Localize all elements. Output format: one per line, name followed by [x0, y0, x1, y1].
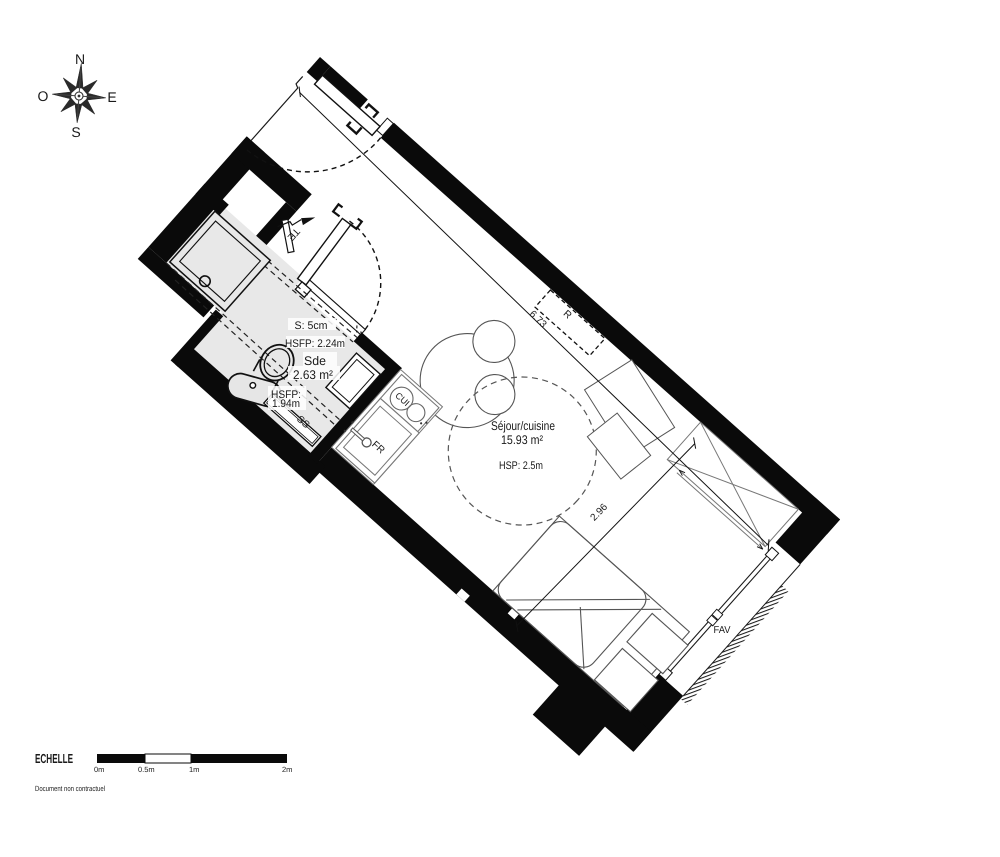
svg-text:0m: 0m	[94, 765, 104, 774]
svg-text:O: O	[38, 88, 49, 104]
svg-text:S: S	[71, 124, 80, 140]
svg-text:2.63 m²: 2.63 m²	[293, 368, 333, 382]
svg-text:2m: 2m	[282, 765, 292, 774]
svg-text:Sde: Sde	[304, 354, 326, 368]
svg-text:HSP: 2.5m: HSP: 2.5m	[499, 460, 543, 472]
svg-text:E: E	[107, 89, 116, 105]
svg-text:FAV: FAV	[714, 625, 731, 636]
svg-text:Document non contractuel: Document non contractuel	[35, 784, 105, 793]
svg-text:1m: 1m	[189, 765, 199, 774]
svg-text:15.93 m²: 15.93 m²	[501, 433, 543, 447]
svg-text:1.94m: 1.94m	[272, 398, 300, 410]
svg-text:0.5m: 0.5m	[138, 765, 155, 774]
svg-text:N: N	[75, 51, 85, 67]
svg-text:ECHELLE: ECHELLE	[35, 751, 73, 766]
svg-text:Séjour/cuisine: Séjour/cuisine	[491, 419, 555, 433]
svg-text:HSFP: 2.24m: HSFP: 2.24m	[285, 338, 345, 350]
svg-text:S: 5cm: S: 5cm	[295, 320, 328, 332]
